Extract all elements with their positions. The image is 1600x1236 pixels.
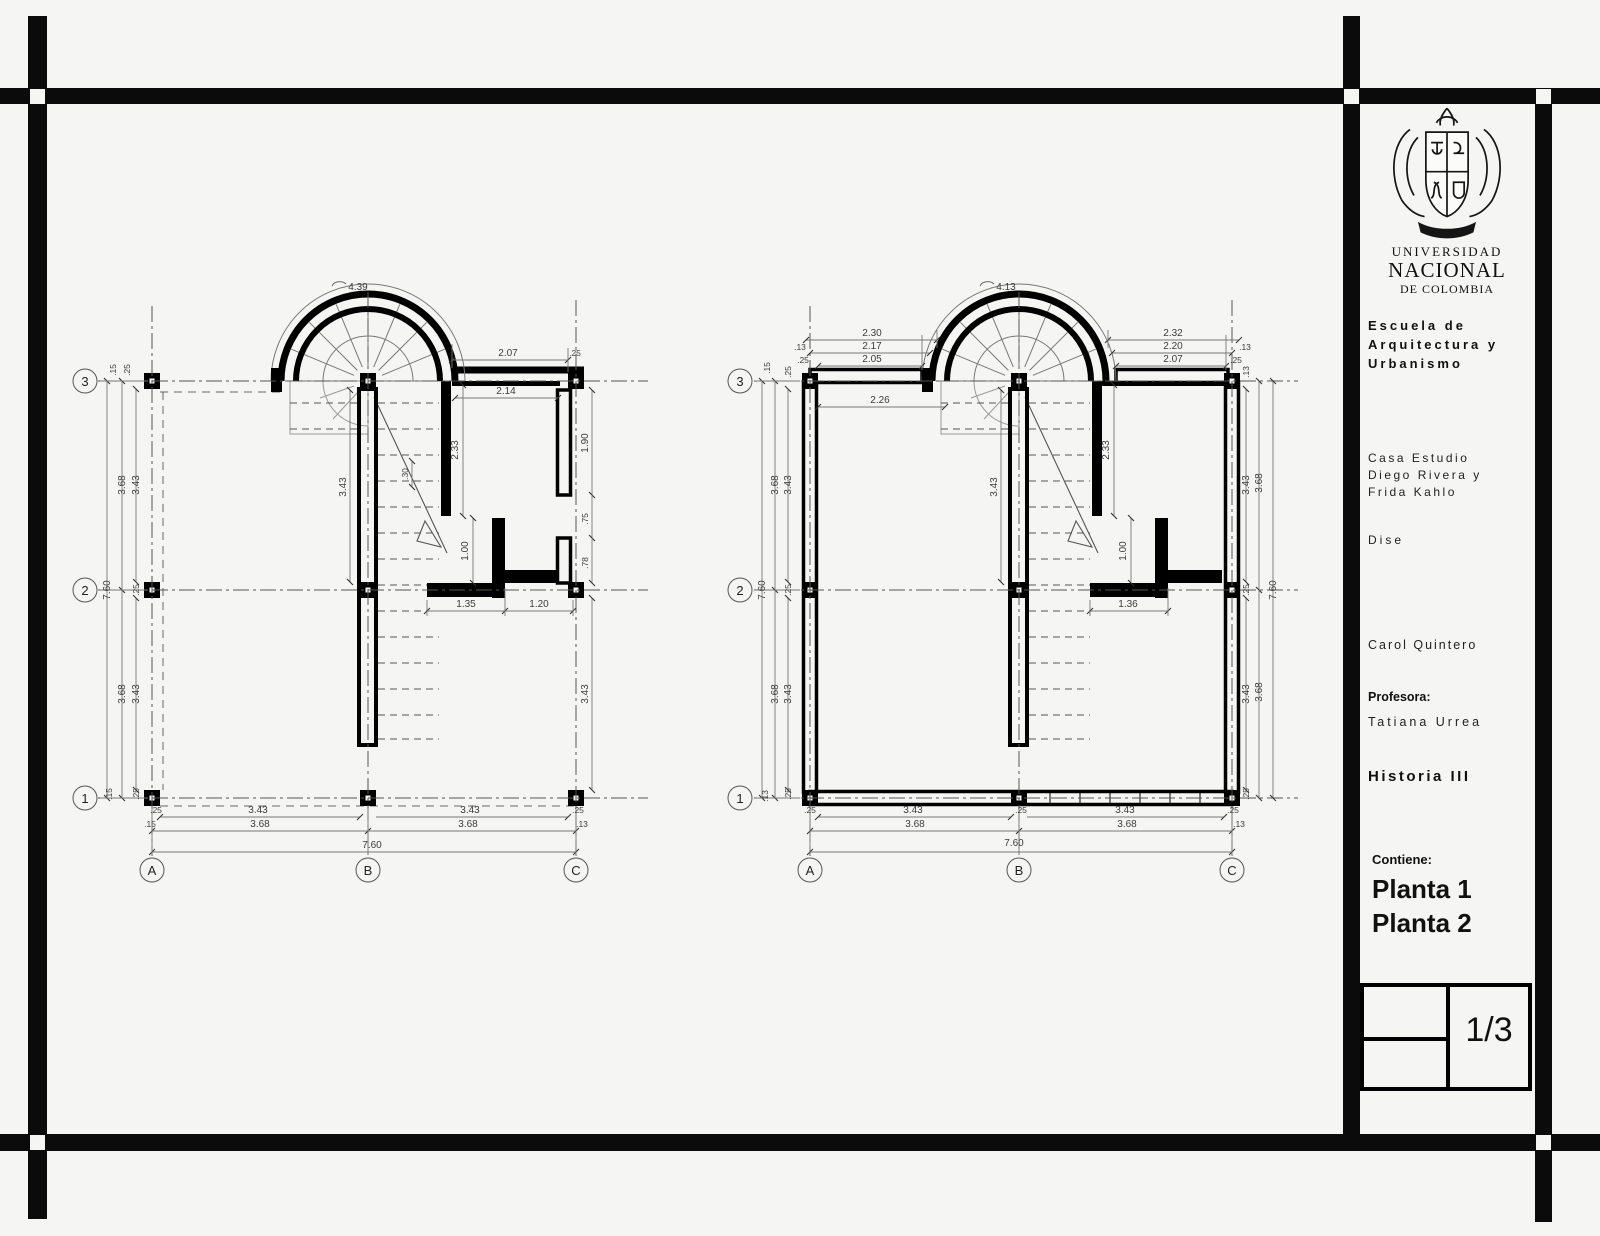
dim-label: .25 [783,366,793,378]
dim-label: 3.68 [1254,682,1265,702]
dim-label: 2.20 [1163,341,1183,352]
dim-label: .25 [1015,805,1027,815]
dim-label: .25 [1241,584,1251,596]
dim-label: .75 [580,513,590,525]
dim-label: 2.14 [496,386,516,397]
dim-label: 3.43 [1115,805,1135,816]
dim-label: .13 [1241,366,1251,378]
dim-label: .25 [131,584,141,596]
dim-label: 2.33 [1101,440,1112,460]
dim-label: 4.13 [996,282,1016,293]
dim-label: 1.00 [460,541,471,561]
dim-label: .15 [108,364,118,376]
dim-label: 7.60 [362,840,382,851]
dim-label: .15 [144,819,156,829]
dim-label: 3.68 [117,684,128,704]
dim-label: 3.68 [770,684,781,704]
dim-label: 3.43 [338,477,349,497]
dim-label: .25 [150,805,162,815]
grid-bubble-label: A [806,863,815,878]
dim-label: .25 [1227,805,1239,815]
dim-label: 3.43 [460,805,480,816]
dim-label: 7.60 [757,580,768,600]
dim-label: 3.68 [250,819,270,830]
floor-plans-drawing: 4.39 2.07 .25 2.14 2.33 1.90 .75 .78 .30… [0,0,1600,1236]
dim-label: .25 [783,584,793,596]
dim-label: 3.68 [770,475,781,495]
grid-bubble-label: C [571,863,580,878]
dim-label: 2.07 [1163,354,1183,365]
dim-label: 1.36 [1118,599,1138,610]
floor-plan-1: 4.39 2.07 .25 2.14 2.33 1.90 .75 .78 .30… [73,282,648,882]
dim-label: .78 [580,557,590,569]
dim-label: 3.43 [1241,475,1252,495]
grid-bubble-label: 3 [81,374,88,389]
dim-label: 3.68 [458,819,478,830]
dim-label: .25 [804,805,816,815]
dim-label: 3.43 [248,805,268,816]
dim-label: .25 [122,364,132,376]
plan2-dim-lines [756,282,1273,855]
drawing-sheet: UNIVERSIDAD NACIONAL DE COLOMBIA Escuela… [0,0,1600,1236]
dim-label: 3.68 [1117,819,1137,830]
dim-label: 3.43 [131,475,142,495]
dim-label: 2.30 [862,328,882,339]
dim-label: .13 [576,819,588,829]
plan2-dim-labels: 4.13 2.30 2.17 2.05 .13 .25 2.26 2.32 2.… [757,282,1279,849]
dim-label: .15 [762,362,772,374]
dim-label: .25 [572,805,584,815]
dim-label: 3.68 [1254,473,1265,493]
dim-label: .15 [104,788,114,800]
grid-bubble-label: B [1015,863,1024,878]
dim-label: 1.90 [580,433,591,453]
grid-bubble-label: 1 [81,791,88,806]
dim-label: 4.39 [348,282,368,293]
plan2-fireplace [1090,518,1222,598]
grid-bubble-label: C [1227,863,1236,878]
dim-label: .13 [794,342,806,352]
dim-label: 1.20 [529,599,549,610]
plan1-fireplace [427,518,559,598]
grid-bubble-label: 1 [736,791,743,806]
dim-label: .25 [1230,355,1242,365]
dim-label: 1.00 [1118,541,1129,561]
dim-label: 3.43 [1241,684,1252,704]
dim-label: .25 [797,355,809,365]
dim-label: .30 [400,468,410,480]
dim-label: 3.68 [117,475,128,495]
dim-label: 1.35 [456,599,476,610]
dim-label: 7.60 [102,580,113,600]
dim-label: 7.60 [1004,838,1024,849]
dim-label: 3.43 [580,684,591,704]
dim-label: .25 [569,348,581,358]
grid-bubble-label: 3 [736,374,743,389]
dim-label: 2.07 [498,348,518,359]
dim-label: 2.17 [862,341,882,352]
dim-label: 3.43 [989,477,1000,497]
floor-plan-2: 4.13 2.30 2.17 2.05 .13 .25 2.26 2.32 2.… [728,282,1298,882]
grid-bubble-label: 2 [736,583,743,598]
dim-label: 3.43 [903,805,923,816]
dim-label: 2.33 [450,440,461,460]
dim-label: .25 [1241,788,1251,800]
grid-bubble-label: 2 [81,583,88,598]
dim-label: .25 [131,788,141,800]
dim-label: 2.26 [870,395,890,406]
grid-bubble-label: B [364,863,373,878]
dim-label: .13 [760,790,770,802]
dim-label: 2.05 [862,354,882,365]
dim-label: 3.43 [783,475,794,495]
dim-label: .25 [783,788,793,800]
dim-label: 3.43 [783,684,794,704]
dim-label: 3.68 [905,819,925,830]
dim-label: 7.60 [1268,580,1279,600]
dim-label: 3.43 [131,684,142,704]
dim-label: 2.32 [1163,328,1183,339]
dim-label: .13 [1239,342,1251,352]
dim-label: .13 [1233,819,1245,829]
grid-bubble-label: A [148,863,157,878]
